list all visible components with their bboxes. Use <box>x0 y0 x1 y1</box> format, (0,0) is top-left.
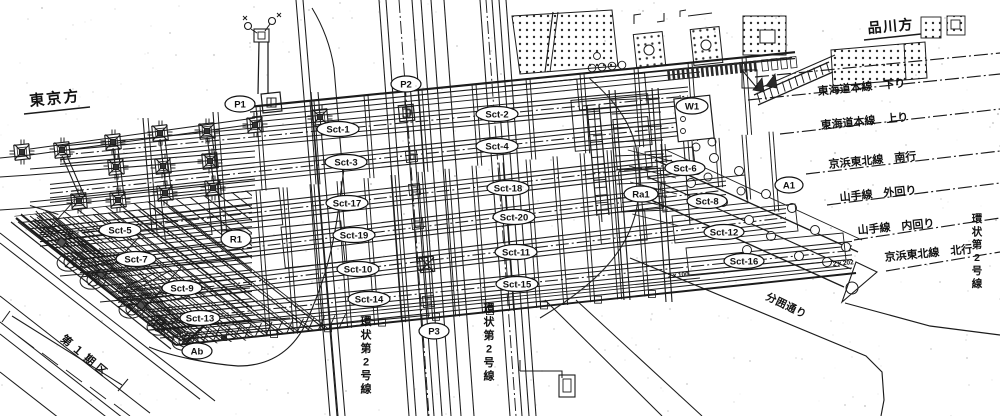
svg-text:号: 号 <box>484 356 495 369</box>
svg-text:号: 号 <box>361 369 372 382</box>
svg-text:2: 2 <box>974 252 980 264</box>
svg-text:号: 号 <box>972 265 983 277</box>
svg-text:Sct-4: Sct-4 <box>485 141 509 152</box>
svg-text:2: 2 <box>363 357 369 369</box>
svg-text:Sct-18: Sct-18 <box>494 183 523 194</box>
svg-text:Sct-11: Sct-11 <box>502 247 531 258</box>
svg-text:Sct-6: Sct-6 <box>673 163 696 174</box>
svg-text:Sct-12: Sct-12 <box>710 227 739 238</box>
svg-text:線: 線 <box>484 369 495 383</box>
svg-text:第: 第 <box>484 328 495 342</box>
svg-text:状: 状 <box>484 315 496 329</box>
svg-text:線: 線 <box>972 277 983 290</box>
svg-text:Ra1: Ra1 <box>632 189 650 200</box>
svg-text:R1: R1 <box>230 234 243 245</box>
svg-text:2: 2 <box>486 344 492 356</box>
svg-text:Sct-17: Sct-17 <box>333 198 362 209</box>
svg-text:第: 第 <box>972 238 983 251</box>
svg-text:Sct-2: Sct-2 <box>485 109 508 120</box>
svg-text:Sct-8: Sct-8 <box>695 196 718 207</box>
svg-text:Sct-7: Sct-7 <box>124 254 147 265</box>
svg-text:P2: P2 <box>400 79 412 90</box>
svg-text:A1: A1 <box>783 180 796 191</box>
svg-text:Sct-3: Sct-3 <box>334 157 357 168</box>
svg-text:Sct-20: Sct-20 <box>500 212 529 223</box>
svg-text:状: 状 <box>972 225 983 238</box>
svg-text:線: 線 <box>361 382 372 396</box>
svg-text:Sct-1: Sct-1 <box>326 124 350 135</box>
svg-text:第: 第 <box>361 341 372 355</box>
svg-text:環: 環 <box>972 213 983 225</box>
svg-text:状: 状 <box>361 328 373 342</box>
svg-text:Sct-5: Sct-5 <box>108 225 132 236</box>
svg-text:Sct-19: Sct-19 <box>340 230 369 241</box>
svg-text:環: 環 <box>484 302 496 315</box>
svg-text:Sct-16: Sct-16 <box>730 256 759 267</box>
svg-text:Sct-15: Sct-15 <box>503 279 532 290</box>
svg-text:Sct-9: Sct-9 <box>170 283 193 294</box>
svg-text:Sct-10: Sct-10 <box>344 264 373 275</box>
svg-text:P1: P1 <box>234 99 246 110</box>
svg-text:環: 環 <box>361 315 373 328</box>
svg-text:Ab: Ab <box>191 346 204 357</box>
svg-text:W1: W1 <box>685 101 700 112</box>
svg-text:Sct-13: Sct-13 <box>186 313 215 324</box>
svg-text:P3: P3 <box>428 326 440 337</box>
